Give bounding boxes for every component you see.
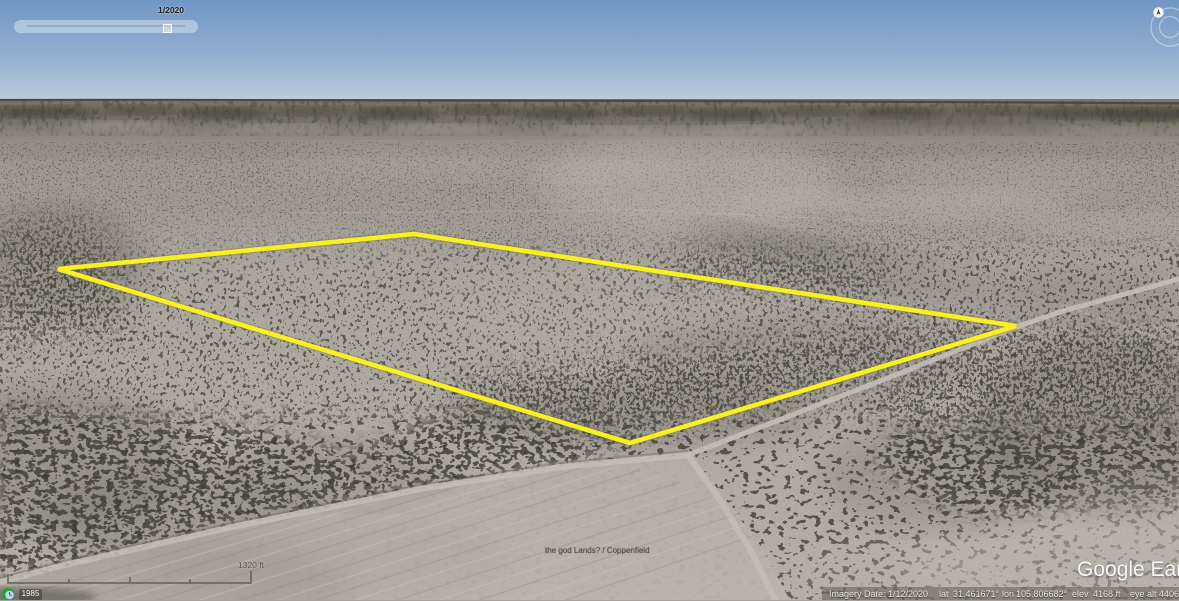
svg-text:1320 ft: 1320 ft: [238, 560, 265, 570]
